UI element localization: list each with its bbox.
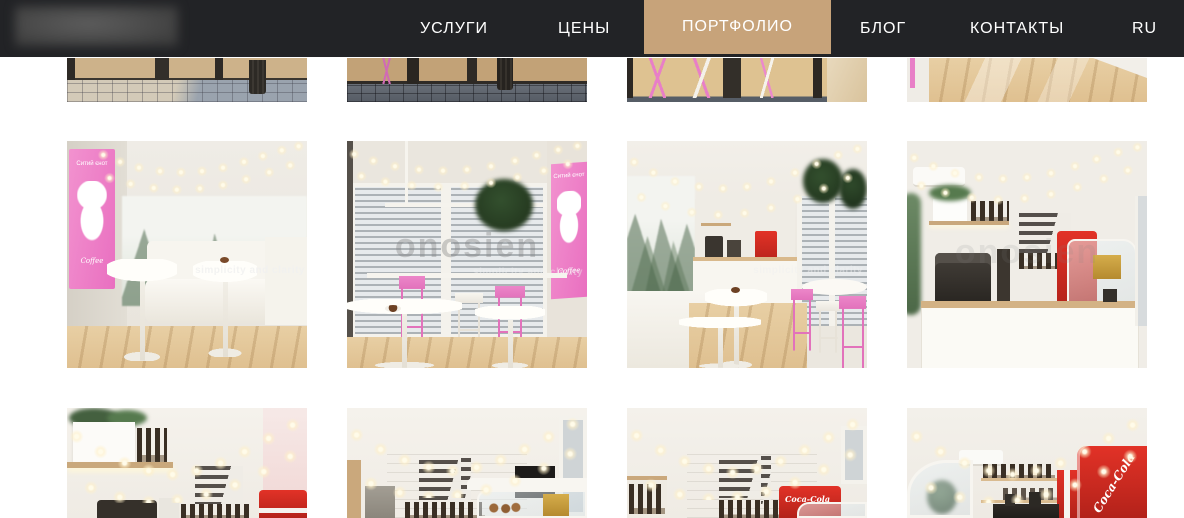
coke-logo: Coca-Cola: [1090, 450, 1139, 517]
bar-stool: [375, 58, 399, 84]
coffee-grinders: [993, 504, 1059, 518]
planter-box: [73, 422, 135, 462]
portfolio-thumbnail-r1c1[interactable]: [67, 58, 307, 102]
counter-top: [921, 301, 1139, 308]
stool-leg: [910, 58, 915, 88]
portfolio-thumbnail-r3c4[interactable]: Coca-Cola: [907, 408, 1147, 518]
syrup-bottles: [181, 504, 249, 518]
watermark-big: onosien: [907, 233, 1147, 272]
case-top-beam: [467, 478, 587, 490]
oven: [727, 240, 741, 258]
wall-shelf: [701, 223, 731, 226]
bar-stool: [747, 58, 787, 98]
window: [841, 426, 867, 484]
pastry-case: [797, 502, 867, 518]
page: УСЛУГИ ЦЕНЫ ПОРТФОЛИО БЛОГ КОНТАКТЫ RU: [0, 0, 1184, 518]
raccoon-logo: [77, 181, 107, 245]
shelf-jars: [971, 201, 1009, 221]
cake-plate: [385, 305, 401, 312]
top-navbar: УСЛУГИ ЦЕНЫ ПОРТФОЛИО БЛОГ КОНТАКТЫ RU: [0, 0, 1184, 57]
portfolio-thumbnail-r3c3[interactable]: Coca-Cola: [627, 408, 867, 518]
hanging-rod: [405, 141, 408, 205]
menu-letterboard: [195, 466, 243, 504]
plants: [929, 185, 971, 201]
pavement: [347, 84, 587, 102]
forest-mural: [627, 176, 695, 301]
bar-stool: [682, 58, 722, 98]
language-switcher[interactable]: RU: [1132, 0, 1157, 57]
cafe-table: [347, 299, 462, 368]
nav-item-blog[interactable]: БЛОГ: [860, 0, 906, 57]
planter-box: [933, 199, 967, 221]
wall-shelf: [981, 478, 1057, 481]
espresso-machine: [705, 236, 723, 259]
coke-fridge: [259, 490, 307, 518]
wall-shelf: [67, 462, 173, 468]
nav-item-prices[interactable]: ЦЕНЫ: [558, 0, 610, 57]
cooler-white-band: [1064, 470, 1070, 518]
portfolio-thumbnail-r3c2[interactable]: [347, 408, 587, 518]
window-frame: [627, 58, 633, 98]
window-frame: [813, 58, 822, 98]
shelf-jars: [137, 428, 167, 462]
bar-stool-white: [816, 301, 840, 353]
portfolio-thumbnail-r1c3[interactable]: [627, 58, 867, 102]
wood-floor: [67, 326, 307, 368]
logo-blurred[interactable]: [15, 6, 178, 46]
grinder-hopper: [1005, 494, 1015, 506]
portfolio-thumbnail-r3c1[interactable]: [67, 408, 307, 518]
pavement: [67, 80, 307, 102]
portfolio-thumbnail-r2c1[interactable]: Ситий єнот Coffee simplicity and clarity: [67, 141, 307, 368]
watermark-tagline: simplicity and clarity: [387, 267, 583, 278]
cupcake: [220, 257, 229, 263]
hanging-plant: [803, 159, 843, 203]
air-conditioner: [913, 167, 965, 187]
nav-item-portfolio[interactable]: ПОРТФОЛИО: [644, 0, 831, 54]
portfolio-thumbnail-r2c2[interactable]: Ситий єнот Coffee onosien simplicity and…: [347, 141, 587, 368]
wall-shelf: [981, 500, 1057, 503]
watermark-tagline: simplicity and clarity: [167, 265, 305, 276]
hanging-plant: [475, 179, 533, 231]
cupcake: [731, 287, 740, 293]
bar-stool-pink: [839, 296, 866, 368]
window-frame: [467, 58, 477, 86]
watermark-tagline: simplicity and clarity: [697, 265, 863, 276]
nav-item-contacts[interactable]: КОНТАКТЫ: [970, 0, 1064, 57]
counter-front: [921, 308, 1139, 368]
side-shelf: [347, 460, 361, 518]
espresso-machine: [97, 500, 157, 518]
wall-shelf: [929, 221, 1009, 225]
fridge-white-band: [259, 508, 307, 513]
portfolio-thumbnail-r1c2[interactable]: [347, 58, 587, 102]
buns: [487, 502, 521, 514]
shelf-jars: [629, 484, 665, 514]
mural-text-brand: Ситий єнот: [551, 172, 587, 181]
white-cube-seat: [265, 237, 307, 325]
syrup-bottles: [405, 502, 485, 518]
shelf-bottles: [983, 464, 1055, 478]
watermark-big: onosien: [347, 227, 587, 266]
portfolio-thumbnail-r2c3[interactable]: simplicity and clarity: [627, 141, 867, 368]
mural-text-brand: Ситий єнот: [69, 161, 115, 167]
menu-letterboard-strip: [761, 456, 771, 504]
gold-display-box: [543, 494, 569, 516]
portfolio-thumbnail-r1c4[interactable]: [907, 58, 1147, 102]
bar-stool-pink: [791, 289, 813, 351]
trash-bin: [249, 60, 266, 94]
white-machine: [159, 498, 179, 518]
coke-fridge-large: Coca-Cola: [1077, 446, 1147, 518]
portfolio-thumbnail-r2c4[interactable]: onosien: [907, 141, 1147, 368]
trash-bin: [497, 58, 513, 90]
coke-cooler: [1057, 470, 1077, 518]
nav-item-services[interactable]: УСЛУГИ: [420, 0, 488, 57]
hanging-plant: [839, 169, 867, 209]
cafe-table: [679, 317, 761, 368]
bar-stool: [639, 58, 677, 98]
steel-fridge: [365, 486, 395, 518]
window-frame: [407, 58, 419, 86]
cafe-table: [475, 306, 545, 368]
side-wall: [827, 58, 867, 102]
window-frame: [723, 58, 741, 98]
grinder-hopper: [1029, 492, 1041, 506]
syrup-bottles: [719, 500, 779, 518]
tip-box: [1103, 289, 1117, 302]
